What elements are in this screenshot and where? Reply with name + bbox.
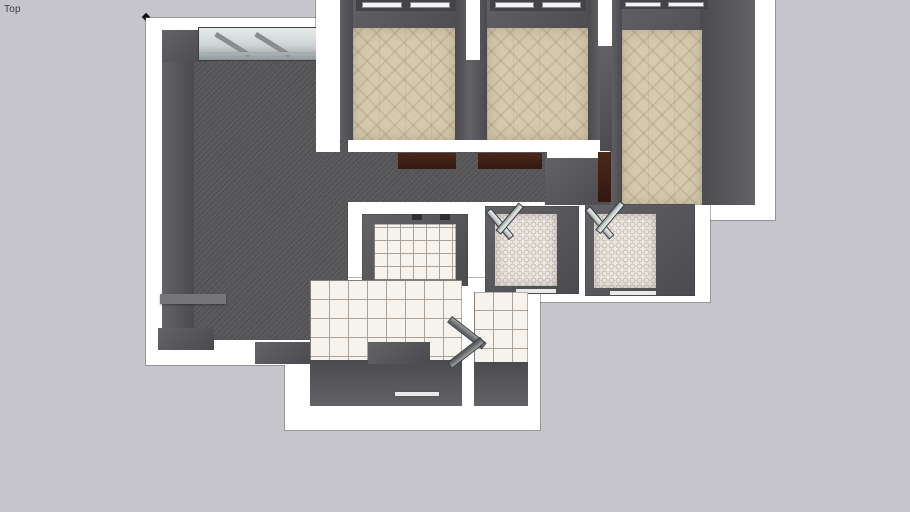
view-label: Top — [4, 4, 21, 15]
utility-room-floor-tiles[interactable] — [474, 292, 528, 368]
kitchen-threshold — [395, 392, 439, 396]
bedroom-right-east-wall-face — [700, 0, 755, 205]
bedroom-right-window[interactable] — [620, 0, 708, 9]
window-sash-icon — [625, 2, 661, 7]
window-sash-icon — [495, 2, 534, 8]
bedroom-left-window[interactable] — [356, 0, 456, 11]
bedroom-left-floor[interactable] — [353, 28, 455, 140]
storage-room-floor[interactable] — [374, 224, 456, 280]
wall-top-bedroom-divider-1 — [466, 0, 480, 60]
bedroom-middle-floor[interactable] — [487, 28, 588, 140]
hallway-open-door-right[interactable] — [598, 152, 611, 202]
bathroom-right-threshold — [610, 291, 656, 295]
south-step-wall-block — [255, 342, 313, 364]
storage-door-hinge-icon — [412, 214, 422, 220]
bedroom-right-floor[interactable] — [622, 30, 702, 205]
bedroom-divider-wall-face — [600, 46, 612, 151]
wall-top-bedroom-divider-2 — [598, 0, 612, 46]
model-viewport[interactable]: Top — [0, 0, 910, 512]
wall-top-living-bedroom-divider — [316, 0, 340, 152]
utility-south-wall-face — [474, 362, 528, 406]
window-sash-icon — [410, 2, 450, 8]
kitchen-doorway-opening[interactable] — [368, 342, 430, 364]
window-sash-icon — [542, 2, 581, 8]
kitchen-south-wall-face — [310, 360, 462, 406]
hallway-open-door-left[interactable] — [398, 153, 456, 169]
window-track — [201, 52, 319, 55]
hallway-open-door-middle[interactable] — [478, 153, 542, 169]
storage-door-hinge-icon — [440, 214, 450, 220]
bedroom-middle-window[interactable] — [490, 0, 586, 11]
window-sash-icon — [362, 2, 402, 8]
living-west-ledge — [160, 294, 226, 304]
southwest-wall-block — [158, 328, 214, 350]
living-room-window-unit[interactable] — [198, 27, 324, 61]
bedroom-left-west-wall-face — [338, 0, 353, 140]
window-sash-icon — [668, 2, 704, 7]
